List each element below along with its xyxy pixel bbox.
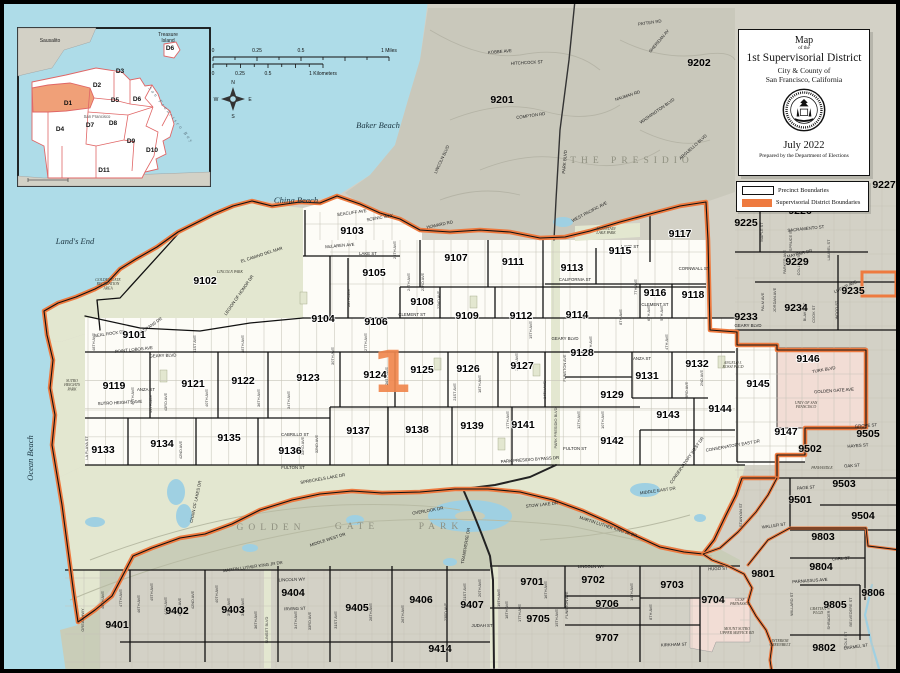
district-boundary-swatch — [742, 199, 772, 207]
precinct-label: 9128 — [570, 347, 594, 359]
avenue-label: MAPLE ST — [759, 222, 764, 242]
title-state: San Francisco, California — [739, 75, 869, 84]
precinct-label: 9233 — [734, 311, 758, 323]
precinct-label: 9503 — [832, 478, 856, 490]
precinct-label: 9137 — [346, 425, 370, 437]
avenue-label: 17TH AVE — [517, 604, 522, 622]
street-label: LINCOLN WY — [578, 564, 605, 569]
precinct-label: 9102 — [193, 275, 217, 287]
place-label: ANGELO J.ROSSI PLGD — [722, 361, 744, 369]
inset-district-label: D6 — [133, 96, 142, 103]
street-label: GEARY BLVD — [149, 353, 176, 359]
avenue-label: PALM AVE — [760, 292, 765, 311]
inset-label-san-francisco: San Francisco — [84, 114, 111, 119]
precinct-label: 9134 — [150, 438, 174, 450]
street-label: LINCOLN WY — [278, 577, 305, 583]
precinct-label: 9106 — [364, 316, 388, 328]
avenue-label: BELVEDERE ST — [848, 597, 853, 627]
avenue-label: 23RD AVE — [443, 602, 448, 621]
avenue-label: 21ST AVE — [452, 383, 457, 401]
precinct-label: 9135 — [217, 432, 241, 444]
avenue-label: FUNSTON AVE — [562, 354, 567, 381]
scale-km-label: 0.5 — [265, 71, 272, 77]
precinct-label: 9104 — [311, 313, 335, 325]
area-label: GATE — [335, 522, 379, 532]
street-label: GEARY BLVD — [552, 336, 579, 341]
avenue-label: 16TH AVE — [543, 581, 548, 599]
precinct-label: 9705 — [526, 613, 550, 625]
precinct-label: 9144 — [708, 403, 732, 415]
precinct-label: 9401 — [105, 619, 129, 631]
avenue-label: 32ND AVE — [314, 434, 319, 453]
precinct-label: 9702 — [581, 574, 605, 586]
precinct-label: 9146 — [796, 353, 820, 365]
map-page: 1THE PRESIDIOGOLDENGATEPARKBaker BeachCh… — [0, 0, 900, 673]
avenue-label: 26TH AVE — [400, 605, 405, 623]
inset-district-label: D6 — [166, 45, 175, 52]
street-label: GEARY BLVD — [735, 323, 762, 328]
avenue-label: 8TH AVE — [618, 309, 623, 325]
precinct-label: 9107 — [444, 252, 468, 264]
avenue-label: 14TH AVE — [629, 583, 634, 601]
avenue-label: 19TH AVE — [496, 589, 501, 607]
avenue-label: 41ST AVE — [192, 335, 197, 353]
legend-label: Supervisorial District Boundaries — [776, 199, 860, 206]
street-label: LAKE ST — [359, 251, 377, 256]
street-label: ANZA ST — [633, 356, 651, 361]
legend-row-precinct: Precinct Boundaries — [737, 186, 868, 195]
avenue-label: 18TH AVE — [504, 601, 509, 619]
avenue-label: 46TH AVE — [136, 595, 141, 613]
street-label: HUGO ST — [708, 566, 728, 572]
precinct-label: 9112 — [510, 310, 533, 322]
precinct-label: 9403 — [221, 604, 245, 616]
precinct-label: 9235 — [841, 285, 865, 297]
avenue-label: 18TH AVE — [477, 375, 482, 393]
water-label: Land's End — [55, 236, 95, 246]
title-credit: Prepared by the Department of Elections — [739, 153, 869, 159]
precinct-label: 9118 — [682, 289, 705, 301]
avenue-label: 36TH AVE — [256, 389, 261, 407]
avenue-label: 45TH AVE — [130, 387, 135, 405]
avenue-label: 27TH AVE — [363, 333, 368, 351]
precinct-label: 9143 — [656, 409, 680, 421]
precinct-label: 9115 — [609, 245, 632, 257]
street-label: CORNWALL ST — [679, 266, 710, 271]
scale-miles-label: 1 Miles — [381, 48, 397, 54]
avenue-label: 15TH AVE — [528, 321, 533, 339]
avenue-label: SPRUCE ST — [788, 228, 793, 251]
precinct-label: 9124 — [363, 369, 387, 381]
scale-miles-label: 0.5 — [298, 48, 305, 54]
city-seal — [739, 87, 869, 138]
precinct-label: 9116 — [644, 287, 667, 299]
avenue-label: 8TH AVE — [648, 604, 653, 620]
inset-map: SausalitoTreasureIslandSan FranciscoSan … — [18, 28, 210, 186]
avenue-label: WILLARD ST — [789, 592, 794, 616]
place-label: INTERIORGREENBELT — [769, 639, 791, 647]
avenue-label: 3RD AVE — [684, 382, 689, 399]
precinct-label: 9803 — [811, 531, 835, 543]
avenue-label: COLE ST — [843, 631, 848, 648]
avenue-label: GREAT HWY — [80, 608, 85, 632]
avenue-label: 44TH AVE — [148, 395, 153, 413]
avenue-label: 4TH AVE — [664, 334, 669, 350]
inset-label-treasure-island: Island — [161, 38, 175, 44]
precinct-label: 9234 — [784, 302, 808, 314]
water-label: Baker Beach — [356, 120, 400, 130]
avenue-label: 45TH AVE — [149, 583, 154, 601]
precinct-label: 9703 — [660, 579, 684, 591]
legend: Precinct Boundaries Supervisorial Distri… — [736, 181, 869, 212]
street-label: ANZA ST — [137, 387, 155, 392]
precinct-label: 9101 — [122, 329, 146, 341]
title-ofthe: of the — [739, 46, 869, 51]
precinct-label: 9133 — [91, 444, 115, 456]
avenue-label: 42ND AVE — [190, 590, 195, 609]
precinct-label: 9126 — [456, 363, 480, 375]
precinct-label: 9704 — [701, 594, 725, 606]
avenue-label: SUNSET BLVD — [264, 616, 269, 643]
precinct-label: 9404 — [281, 587, 305, 599]
avenue-label: 7TH AVE — [633, 279, 638, 295]
precinct-label: 9113 — [561, 262, 584, 274]
avenue-label: 28TH AVE — [368, 603, 373, 621]
precinct-label: 9132 — [685, 358, 709, 370]
precinct-label: 9114 — [566, 309, 589, 321]
lake — [443, 558, 457, 566]
precinct-label: 9406 — [409, 594, 433, 606]
avenue-label: 25TH AVE — [392, 241, 397, 259]
precinct-label: 9804 — [809, 561, 833, 573]
scale-km-label: 1 Kilometers — [309, 71, 337, 77]
avenue-label: 14TH AVE — [542, 381, 547, 399]
precinct-label: 9405 — [345, 602, 369, 614]
precinct-label: 9505 — [856, 428, 880, 440]
scale-miles-label: 0 — [212, 48, 215, 54]
precinct-label: 9105 — [362, 267, 386, 279]
street-label: FULTON ST — [281, 465, 305, 470]
lake — [167, 479, 185, 505]
title-map: Map — [739, 35, 869, 46]
precinct-label: 9414 — [428, 643, 452, 655]
avenue-label: FUNSTON AVE — [564, 591, 569, 618]
avenue-label: 48TH AVE — [91, 333, 96, 351]
street-label: IRVING ST — [284, 606, 306, 612]
precinct-label: 9501 — [788, 494, 812, 506]
avenue-label: 5TH AVE — [659, 305, 664, 321]
scale-miles-label: 0.25 — [252, 48, 262, 54]
precinct-label: 9706 — [595, 598, 619, 610]
precinct-label: 9142 — [600, 435, 624, 447]
avenue-label: 24TH AVE — [406, 273, 411, 291]
precinct-label: 9131 — [635, 370, 659, 382]
place-label: MOUNT SUTROUPPER SERVICE RD — [720, 627, 754, 635]
precinct-label: 9103 — [340, 225, 364, 237]
precinct-label: 9801 — [751, 568, 775, 580]
compass-point: N — [231, 80, 235, 86]
precinct-label: 9141 — [511, 419, 535, 431]
inset-label-sausalito: Sausalito — [40, 38, 61, 44]
avenue-label: 36TH AVE — [253, 611, 258, 629]
avenue-label: 34TH AVE — [286, 391, 291, 409]
avenue-label: LA PLAYA ST — [84, 436, 89, 460]
water-label: China Beach — [274, 195, 318, 205]
avenue-label: 15TH AVE — [554, 609, 559, 627]
area-label: PARK — [419, 522, 463, 532]
scale-km-label: 0.25 — [235, 71, 245, 77]
area-label: GOLDEN — [236, 523, 305, 533]
street-label: KIRKHAM ST — [661, 642, 688, 648]
precinct-label: 9136 — [278, 445, 302, 457]
precinct-label: 9119 — [103, 380, 126, 392]
precinct-label: 9123 — [296, 372, 320, 384]
inset-district-label: D11 — [98, 167, 110, 174]
inset-district-label: D10 — [146, 147, 158, 154]
legend-row-district: Supervisorial District Boundaries — [737, 199, 868, 207]
street-label: JUDAH ST — [471, 623, 492, 628]
avenue-label: 2ND AVE — [699, 370, 704, 387]
precinct-label: 9139 — [460, 420, 484, 432]
street-label: FULTON ST — [563, 446, 587, 451]
title-date: July 2022 — [739, 140, 869, 151]
inset-district-label: D7 — [86, 122, 95, 129]
inset-district-label: D4 — [56, 126, 65, 133]
precinct-label: 9504 — [851, 510, 875, 522]
place-label: UNIV OF SANFRANCISCO — [795, 401, 818, 409]
street-label: CLEMENT ST — [398, 312, 426, 317]
title-box: Map of the 1st Supervisorial District Ci… — [738, 29, 870, 176]
avenue-label: STANYAN ST — [738, 502, 743, 526]
compass-point: W — [214, 97, 219, 103]
precinct-label: 9707 — [595, 632, 619, 644]
avenue-label: WOOD ST — [834, 300, 839, 319]
precinct-label: 9802 — [812, 642, 836, 654]
avenue-label: COOK ST — [811, 305, 816, 323]
avenue-label: PARK PRESIDIO BLVD — [553, 407, 558, 448]
precinct-label: 9108 — [410, 296, 434, 308]
precinct-label: 9227 — [872, 179, 896, 191]
place-label: MOUNTAINLAKE PARK — [595, 227, 616, 235]
avenue-label: 38TH AVE — [240, 335, 245, 353]
precinct-boundary-swatch — [742, 186, 774, 195]
water-label: Ocean Beach — [25, 435, 35, 481]
precinct-label: 9502 — [798, 443, 822, 455]
avenue-label: 43RD AVE — [163, 392, 168, 411]
precinct-label: 9202 — [687, 57, 711, 69]
precinct-label: 9225 — [734, 217, 758, 229]
precinct-label: 9701 — [520, 576, 544, 588]
precinct-label: 9129 — [600, 389, 624, 401]
scale-km-label: 0 — [212, 71, 215, 77]
avenue-label: 48TH AVE — [100, 591, 105, 609]
place-label: LINCOLN PARK — [216, 270, 243, 274]
precinct-label: 9127 — [510, 360, 534, 372]
avenue-label: 33RD AVE — [307, 611, 312, 630]
avenue-label: 40TH AVE — [204, 389, 209, 407]
street-label: CABRILLO ST — [281, 432, 309, 437]
avenue-label: LAUREL ST — [826, 239, 831, 261]
inset-district-label: D1 — [64, 100, 73, 107]
avenue-label: 42ND AVE — [178, 440, 183, 459]
legend-label: Precinct Boundaries — [778, 187, 829, 194]
avenue-label: 31ST AVE — [333, 611, 338, 629]
inset-district-label: D8 — [109, 120, 118, 127]
precinct-label: 9805 — [823, 599, 847, 611]
avenue-label: 17TH AVE — [505, 411, 510, 429]
inset-district-label: D2 — [93, 82, 102, 89]
lake — [694, 514, 706, 522]
map-shape — [32, 83, 94, 112]
street-label: CALIFORNIA ST — [559, 277, 592, 282]
avenue-label: JORDAN AVE — [772, 287, 777, 312]
precinct-label: 9109 — [455, 310, 479, 322]
precinct-label: 9201 — [490, 94, 514, 106]
avenue-label: 30TH AVE — [330, 347, 335, 365]
lake — [85, 517, 105, 527]
avenue-label: 20TH AVE — [477, 579, 482, 597]
inset-district-label: D3 — [116, 68, 125, 75]
precinct-label: 9229 — [785, 256, 809, 268]
area-label: THE PRESIDIO — [570, 156, 694, 166]
street-label: CARL ST — [832, 556, 851, 562]
avenue-label: 34TH AVE — [293, 611, 298, 629]
place-label: PANHANDLE — [810, 466, 833, 470]
avenue-label: 47TH AVE — [118, 589, 123, 607]
avenue-label: 22ND AVE — [436, 290, 441, 309]
avenue-label: 6TH AVE — [646, 305, 651, 321]
precinct-label: 9111 — [502, 256, 524, 268]
precinct-label: 9138 — [405, 424, 429, 436]
avenue-label: 23RD AVE — [420, 272, 425, 291]
avenue-label: 40TH AVE — [214, 585, 219, 603]
title-city: City & County of — [739, 66, 869, 75]
avenue-label: 28TH AVE — [346, 289, 351, 307]
precinct-label: 9806 — [861, 587, 885, 599]
precinct-label: 9125 — [410, 364, 434, 376]
title-district: 1st Supervisorial District — [739, 52, 869, 64]
inset-district-label: D5 — [111, 97, 120, 104]
precinct-label: 9147 — [774, 426, 798, 438]
precinct-label: 9402 — [165, 605, 189, 617]
precinct-label: 9122 — [231, 375, 255, 387]
precinct-label: 9407 — [460, 599, 484, 611]
precinct-label: 9145 — [746, 378, 770, 390]
lake — [242, 544, 258, 552]
avenue-label: 12TH AVE — [576, 411, 581, 429]
avenue-label: 10TH AVE — [600, 411, 605, 429]
inset-district-label: D9 — [127, 138, 136, 145]
precinct-label: 9121 — [181, 378, 205, 390]
precinct-label: 9117 — [669, 228, 692, 240]
